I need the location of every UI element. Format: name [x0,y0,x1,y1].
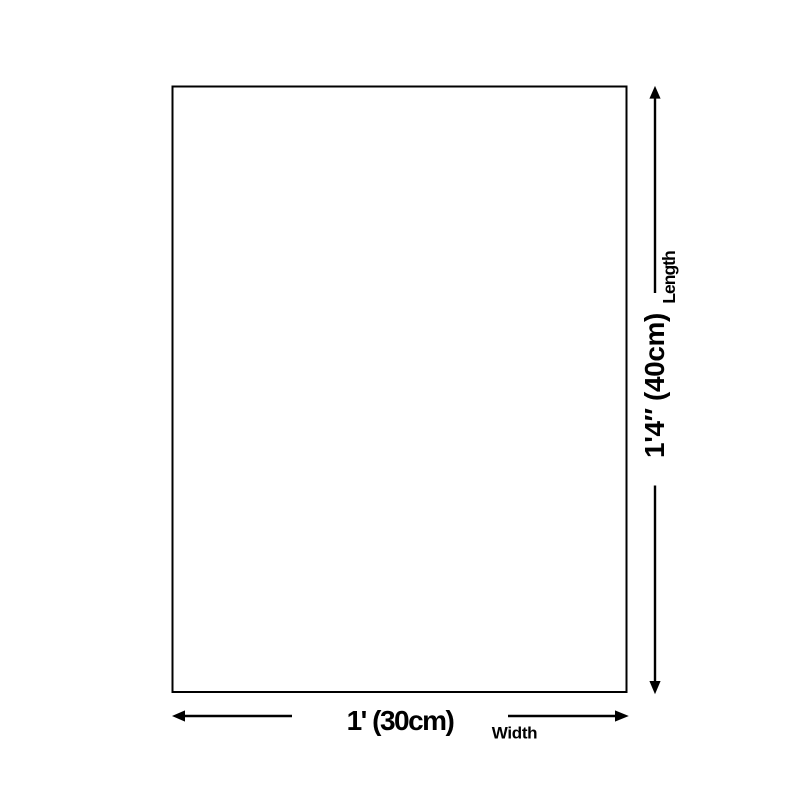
svg-text:1'4″ (40cm): 1'4″ (40cm) [639,313,670,458]
svg-text:Length: Length [659,251,679,304]
svg-text:1' (30cm): 1' (30cm) [347,705,454,736]
svg-text:Width: Width [492,724,538,743]
